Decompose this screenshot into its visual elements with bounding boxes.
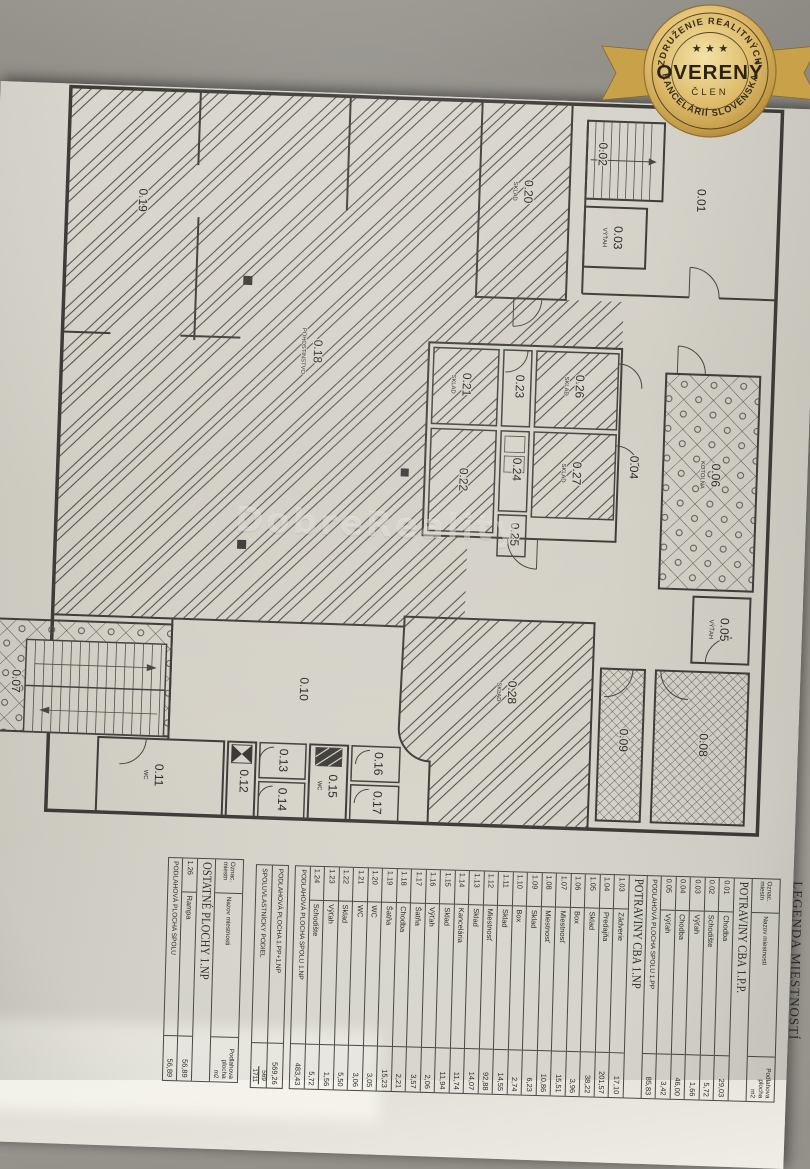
cell-oznac: 1.11 (498, 872, 512, 906)
room-sublabel: SKLAD (511, 182, 518, 201)
room-0-28 (396, 617, 595, 830)
cell-plocha: 85,83 (642, 1054, 657, 1098)
cell-oznac: 1.10 (513, 872, 527, 906)
room-label: 0.04 (627, 456, 642, 480)
header-oznac: Oznac. miestn (215, 859, 243, 894)
cell-oznac: 0.05 (661, 876, 675, 910)
cell-plocha: 3,96 (566, 1052, 581, 1096)
cell-plocha: 5,72 (305, 1045, 320, 1089)
cell-oznac: 1.20 (368, 868, 382, 902)
room-label: 0.14 (275, 788, 290, 812)
column (243, 276, 252, 285)
column (237, 540, 246, 549)
cell-oznac: 0.04 (676, 877, 690, 911)
cell-plocha: 569,26 (267, 1044, 283, 1088)
legend-title: LEGENDA MIESTNOSTÍ (784, 881, 806, 1103)
cell-oznac: 1.21 (353, 868, 367, 902)
room-label: 0.01 (694, 189, 709, 213)
room-sublabel: VÝŤAH (601, 228, 610, 248)
room-label: 0.17 (370, 791, 385, 815)
cell-oznac: 1.14 (455, 871, 469, 905)
room-label: 0.10 (297, 677, 312, 701)
header-plocha: Podlahova plocha m2 (210, 1037, 238, 1082)
cell-oznac: 1.24 (310, 867, 324, 901)
cell-plocha: 5,72 (700, 1056, 715, 1100)
cell-plocha: 3,57 (406, 1047, 421, 1091)
room-label: 0.27 (569, 462, 584, 486)
cell-oznac: 1.26 (183, 858, 197, 892)
room-label: 0.07 (9, 669, 24, 693)
cell-plocha: 3,06 (348, 1046, 363, 1090)
cell-plocha: 14,07 (464, 1049, 479, 1093)
room-label: 0.26 (572, 375, 587, 399)
floorplan-drawing: 0.19 0.18 POHOSTINSTVO 0.20 SKLAD 0.02 0… (0, 79, 796, 851)
room-sublabel: WC (316, 781, 322, 791)
room-label: 0.12 (236, 769, 251, 793)
room-sublabel: SKLAD (495, 682, 502, 701)
room-label: 0.20 (521, 180, 536, 204)
cell-plocha: 2,21 (392, 1047, 407, 1091)
room-label: 0.16 (371, 752, 386, 776)
room-label: 0.15 (325, 774, 340, 798)
cell-plocha: 10,86 (537, 1051, 552, 1095)
cell-oznac: 0.03 (690, 877, 704, 911)
cell-oznac: 1.06 (571, 874, 585, 908)
cell-oznac: 1.05 (585, 874, 599, 908)
cell-oznac: 1.16 (426, 870, 440, 904)
cell-oznac: 0.02 (705, 878, 719, 912)
badge-subtitle: ČLEN (691, 87, 728, 98)
room-label: 0.08 (696, 733, 711, 757)
cell-plocha: 14,55 (493, 1050, 508, 1094)
cell-oznac: 1.19 (382, 869, 396, 903)
cell-oznac: 1.12 (484, 872, 498, 906)
room-label: 0.03 (611, 226, 626, 250)
legend-rows: POTRAVINY CBA 1.P.P. 0.01 Chodba 29,03 0… (290, 866, 752, 1101)
cell-plocha: 201,57 (595, 1053, 610, 1097)
photo-of-floorplan-document: { "badge": { "arc_top": "ZDRUŽENIE REALI… (0, 0, 810, 1080)
cell-oznac: 1.17 (411, 869, 425, 903)
cell-plocha: 1,66 (685, 1055, 700, 1099)
room-label: 0.13 (276, 749, 291, 773)
ownership-fraction: 569 1711 (251, 1066, 267, 1084)
room-label: 0.24 (509, 457, 524, 481)
cell-plocha: 17,10 (609, 1053, 624, 1097)
overeny-clen-badge: ZDRUŽENIE REALITNÝCH ★ ★ ★ OVERENÝ ČLEN … (594, 0, 810, 148)
column (401, 468, 409, 476)
zone-0-19-0-18 (53, 87, 483, 629)
cell-oznac: 1.08 (542, 873, 556, 907)
room-sublabel: SKLAD (563, 376, 570, 395)
cell-oznac: 1.13 (469, 871, 483, 905)
badge-title: OVERENÝ (656, 60, 763, 84)
cell-plocha: 56,89 (163, 1036, 178, 1080)
cell-oznac: 1.22 (339, 867, 353, 901)
cell-plocha: 3,42 (656, 1054, 671, 1098)
room-label: 0.18 (310, 339, 325, 363)
cell-plocha: 46,00 (671, 1055, 686, 1099)
header-nazov: Nazov miestnosti (211, 893, 242, 1038)
room-label: 0.19 (136, 188, 151, 212)
room-label: 0.22 (456, 468, 471, 492)
room-sublabel: WC (142, 770, 148, 780)
room-label: 0.06 (708, 463, 723, 487)
cell-plocha: 29,03 (714, 1056, 729, 1100)
room-label: 0.05 (717, 618, 732, 642)
cell-oznac: 1.18 (397, 869, 411, 903)
legend-summary: PODLAHOVÁ PLOCHA 1.PP+1.NP 569,26 SPOLUV… (250, 864, 289, 1089)
cell-plocha: 2,74 (508, 1050, 523, 1094)
header-plocha: Podlahova plocha m2 (747, 1057, 775, 1102)
cell-plocha: 2,06 (421, 1048, 436, 1092)
room-label: 0.23 (512, 375, 527, 399)
other-rows: OSTATNÉ PLOCHY 1.NP 1.26 Rampa 56,89 POD… (163, 858, 215, 1081)
cell-plocha: 92,88 (479, 1049, 494, 1093)
cell-oznac: 1.07 (556, 874, 570, 908)
cell-podiel: 569 1711 (251, 1043, 267, 1087)
legend-table: LEGENDA MIESTNOSTÍ Oznac. miestn Nazov m… (250, 864, 806, 1103)
cell-plocha: 15,23 (377, 1047, 392, 1091)
room-sublabel: KOTOLŇA (698, 461, 706, 489)
header-oznac: Oznac. miestn (752, 879, 780, 914)
cell-plocha: 11,74 (450, 1049, 465, 1093)
cell-oznac: 1.15 (440, 870, 454, 904)
cell-plocha: 38,22 (580, 1052, 595, 1096)
room-label: 0.28 (505, 680, 520, 704)
header-nazov: Nazov miestnosti (748, 913, 779, 1058)
cell-plocha: 1,56 (319, 1045, 334, 1089)
room-label: 0.21 (459, 373, 474, 397)
cell-plocha: 15,51 (551, 1051, 566, 1095)
cell-oznac: 1.03 (614, 875, 628, 909)
room-sublabel: SKLAD (450, 375, 457, 394)
door-arc (689, 267, 720, 298)
cell-oznac: 1.23 (324, 867, 338, 901)
other-areas-table: Oznac. miestn Nazov miestnosti Podlahova… (162, 857, 244, 1083)
cell-plocha: 56,89 (177, 1036, 192, 1080)
stairs-arrow (649, 158, 657, 165)
room-sublabel: VÝŤAH (707, 620, 716, 640)
cell-plocha: 11,94 (435, 1048, 450, 1092)
cell-plocha: 6,23 (522, 1051, 537, 1095)
cell-oznac: 1.09 (527, 873, 541, 907)
badge-stars: ★ ★ ★ (692, 42, 729, 55)
cell-oznac: 1.04 (600, 875, 614, 909)
room-label: 0.11 (152, 764, 167, 787)
cell-plocha: 5,50 (334, 1045, 349, 1089)
room-sublabel: SKLAD (559, 463, 566, 482)
room-label: 0.09 (616, 728, 631, 752)
cell-oznac: 0.01 (719, 878, 733, 912)
cell-plocha: 3,05 (363, 1046, 378, 1090)
cell-plocha: 483,43 (290, 1044, 305, 1088)
